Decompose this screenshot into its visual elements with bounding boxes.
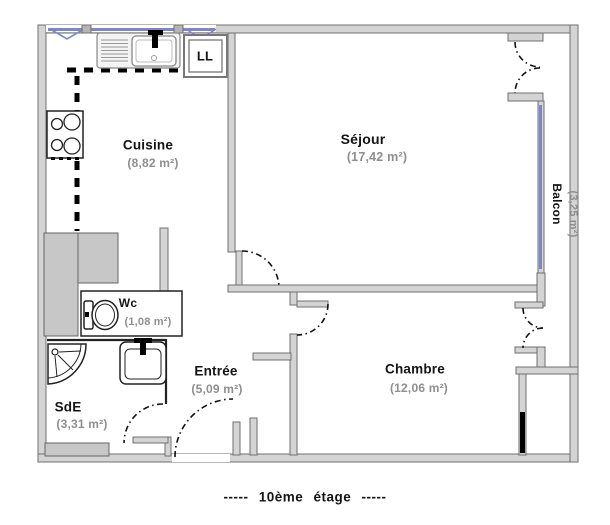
shaft-block (45, 443, 109, 456)
balcony-door-stub (508, 93, 543, 101)
chambre-window-stub (515, 302, 543, 308)
chambre-left-wall-upper (290, 292, 297, 305)
entree-stub-wall (253, 353, 291, 360)
chambre-door-arc (297, 304, 328, 335)
room-label-wc: Wc (119, 296, 137, 310)
chambre-door-leaf (297, 301, 328, 307)
room-area-wc: (1,08 m²) (124, 316, 171, 328)
shaft-block (44, 233, 78, 336)
room-area-balcon: (3,25 m²) (567, 190, 579, 237)
room-label-entree: Entrée (194, 364, 237, 379)
floorplan-canvas: Cuisine (8,82 m²) Séjour (17,42 m²) Wc (… (0, 0, 610, 525)
sejour-left-wall (228, 33, 235, 252)
shower-icon (48, 344, 86, 384)
room-label-sde: SdE (55, 400, 82, 415)
room-label-sejour: Séjour (341, 131, 386, 147)
front-door-arc (175, 399, 233, 457)
room-area-cuisine: (8,82 m²) (127, 156, 178, 170)
wall-bottom (38, 454, 578, 462)
balcony-door-stub-top (508, 33, 543, 41)
room-area-entree: (5,09 m²) (191, 382, 242, 396)
kitchen-sink-icon (97, 30, 180, 68)
sde-door-leaf (133, 437, 168, 443)
room-area-chambre: (12,06 m²) (390, 381, 448, 395)
window-glazing-icon (48, 28, 215, 31)
balcony-glazing-icon (539, 105, 542, 269)
room-label-chambre: Chambre (385, 362, 445, 377)
sejour-chambre-wall (228, 285, 543, 292)
balcony-end-wall (516, 367, 578, 374)
door-arcs (124, 42, 543, 457)
stove-icon (47, 111, 83, 160)
sejour-door-arc (242, 251, 279, 288)
sejour-door-leaf (236, 251, 242, 288)
floorplan-drawing (0, 0, 610, 525)
washbasin-icon (120, 338, 166, 384)
wall-right (570, 25, 578, 462)
window-mullion (174, 25, 183, 33)
sejour-french-door-arc (515, 68, 540, 93)
sejour-french-door-arc (515, 42, 540, 67)
room-area-sejour: (17,42 m²) (347, 150, 407, 164)
floor-caption: ----- 10ème étage ----- (223, 490, 386, 505)
chambre-right-wall-upper (537, 273, 545, 306)
outer-walls (38, 25, 578, 462)
entree-closet-wall (233, 422, 240, 455)
chambre-french-door-arc (523, 308, 543, 328)
chambre-french-door-arc (523, 328, 543, 348)
room-label-cuisine: Cuisine (123, 138, 173, 153)
washing-machine-label: LL (197, 49, 213, 64)
chambre-left-wall-lower (290, 334, 297, 455)
room-label-balcon: Balcon (550, 183, 564, 224)
window-mullion (82, 25, 91, 33)
room-area-sde: (3,31 m²) (56, 417, 107, 431)
entree-closet-wall (250, 418, 257, 455)
chambre-window-black (520, 412, 525, 453)
toilet-icon (84, 301, 118, 330)
wc-lobby-wall (160, 228, 168, 292)
front-door-opening (172, 454, 230, 462)
